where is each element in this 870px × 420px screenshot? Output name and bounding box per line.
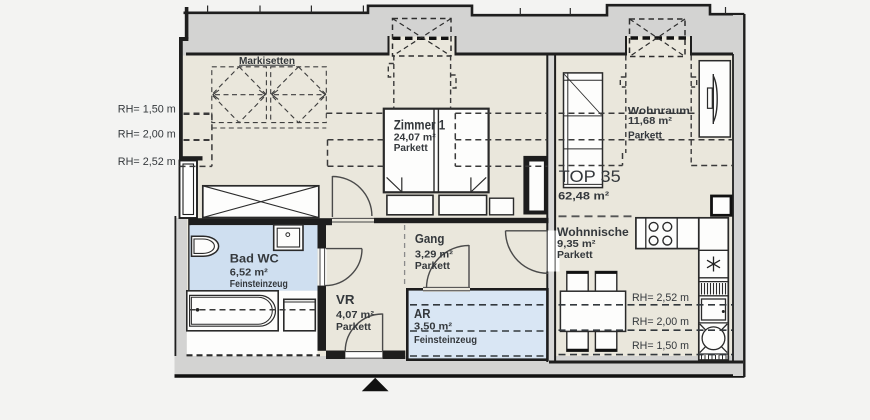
svg-text:RH= 2,52 m: RH= 2,52 m xyxy=(632,292,689,304)
svg-text:Parkett: Parkett xyxy=(628,131,663,142)
svg-text:3,29 m²: 3,29 m² xyxy=(415,248,454,260)
svg-text:Feinsteinzeug: Feinsteinzeug xyxy=(414,334,477,346)
svg-text:11,68 m²: 11,68 m² xyxy=(628,116,673,127)
svg-text:Parkett: Parkett xyxy=(415,260,450,272)
svg-text:Parkett: Parkett xyxy=(557,249,593,261)
svg-text:Gang: Gang xyxy=(415,232,445,246)
svg-text:Zimmer 1: Zimmer 1 xyxy=(394,117,446,132)
svg-text:AR: AR xyxy=(414,306,431,321)
svg-text:RH= 1,50 m: RH= 1,50 m xyxy=(118,103,176,115)
svg-text:TOP 35: TOP 35 xyxy=(559,167,621,186)
svg-text:RH= 2,52 m: RH= 2,52 m xyxy=(118,156,176,168)
svg-text:6,52 m²: 6,52 m² xyxy=(230,266,269,278)
svg-text:Parkett: Parkett xyxy=(394,142,428,154)
svg-text:RH= 2,00 m: RH= 2,00 m xyxy=(632,316,689,328)
svg-text:62,48 m²: 62,48 m² xyxy=(558,190,609,202)
svg-text:RH= 1,50 m: RH= 1,50 m xyxy=(632,340,689,352)
svg-text:VR: VR xyxy=(336,292,355,307)
svg-text:Parkett: Parkett xyxy=(336,321,371,333)
svg-text:3,50 m²: 3,50 m² xyxy=(414,320,453,332)
svg-text:Bad WC: Bad WC xyxy=(230,252,279,266)
svg-text:RH= 2,00 m: RH= 2,00 m xyxy=(118,129,176,141)
svg-text:4,07 m²: 4,07 m² xyxy=(336,309,375,321)
svg-text:Feinsteinzeug: Feinsteinzeug xyxy=(230,278,288,290)
